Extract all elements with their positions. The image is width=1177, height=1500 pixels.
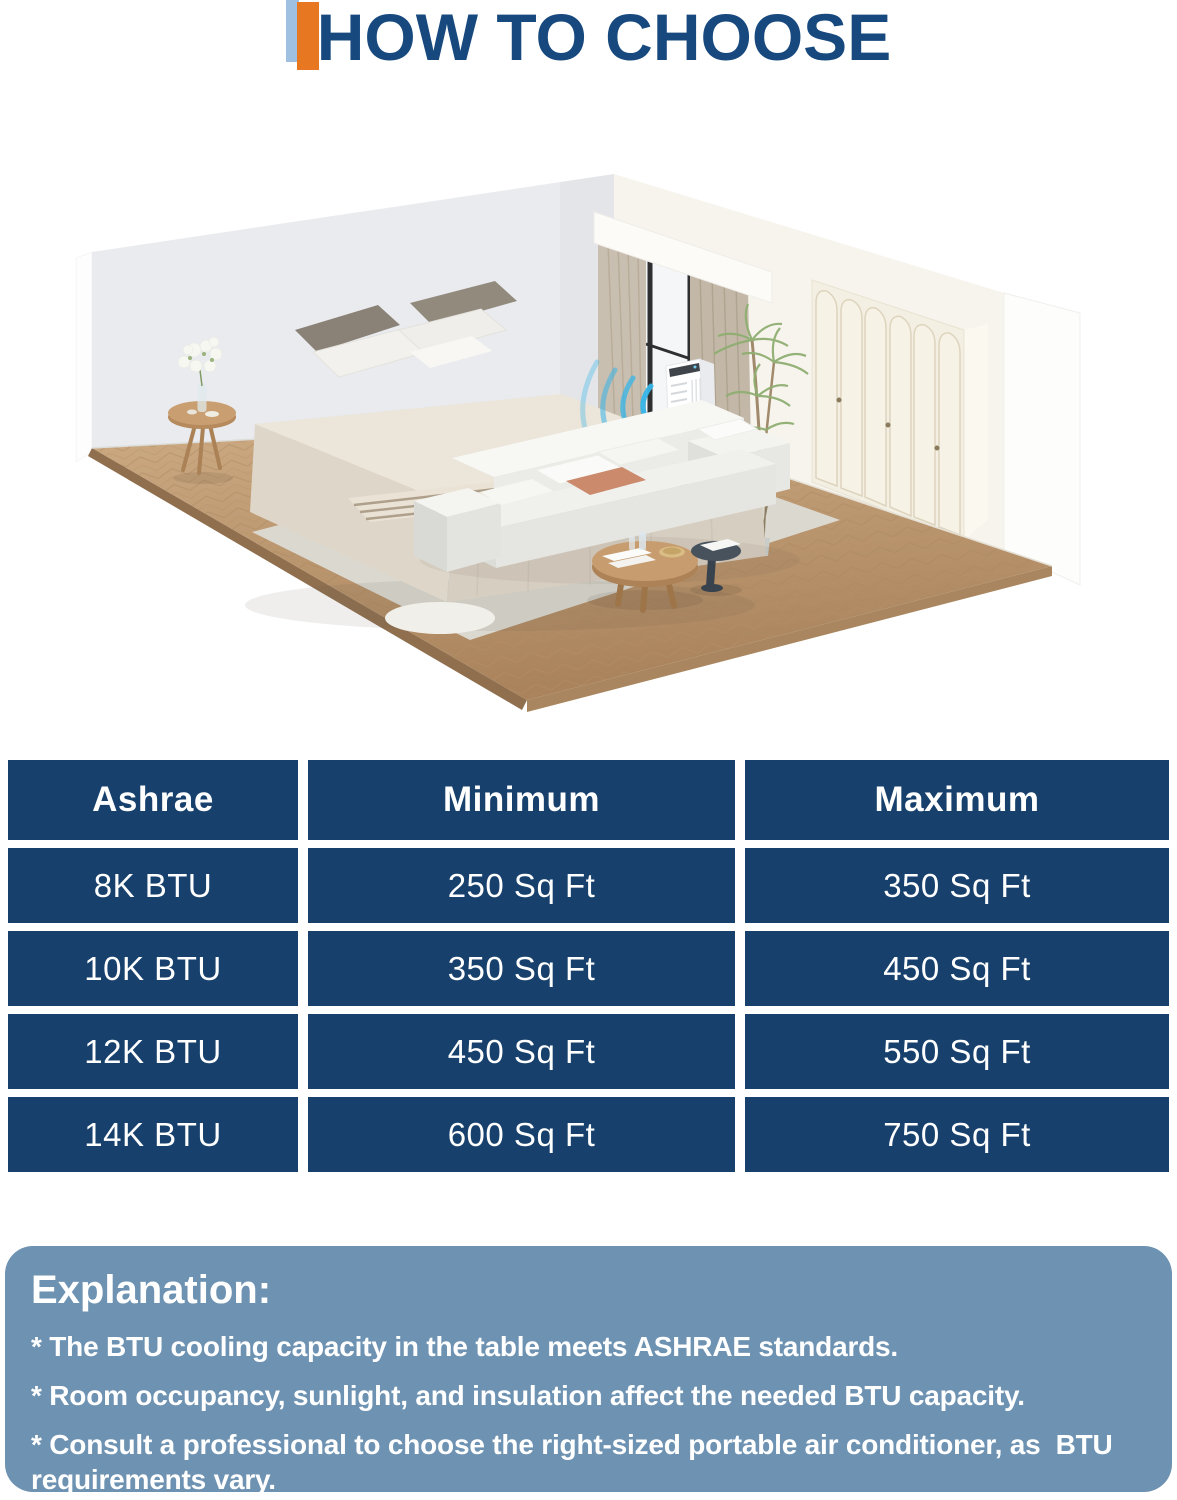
table-cell: 450 Sq Ft (308, 1014, 735, 1089)
table-cell: 350 Sq Ft (745, 848, 1169, 923)
table-cell: 450 Sq Ft (745, 931, 1169, 1006)
table-cell: 8K BTU (8, 848, 298, 923)
table-cell: 350 Sq Ft (308, 931, 735, 1006)
table-cell: 550 Sq Ft (745, 1014, 1169, 1089)
explanation-bullet-2: * Room occupancy, sunlight, and insulati… (31, 1378, 1146, 1414)
explanation-heading: Explanation: (31, 1268, 1146, 1313)
table-header-minimum: Minimum (308, 760, 735, 840)
title-row: HOW TO CHOOSE (0, 0, 1177, 86)
wall-end-panel (1004, 293, 1080, 585)
explanation-bullet-3: * Consult a professional to choose the r… (31, 1427, 1146, 1499)
explanation-panel: Explanation: * The BTU cooling capacity … (5, 1246, 1172, 1492)
accent-bar-orange-icon (297, 2, 319, 70)
infographic-page: HOW TO CHOOSE (0, 0, 1177, 1500)
table-header-maximum: Maximum (745, 760, 1169, 840)
page-title: HOW TO CHOOSE (317, 0, 891, 74)
table-cell: 250 Sq Ft (308, 848, 735, 923)
table-cell: 600 Sq Ft (308, 1097, 735, 1172)
table-cell: 750 Sq Ft (745, 1097, 1169, 1172)
table-cell: 14K BTU (8, 1097, 298, 1172)
table-cell: 12K BTU (8, 1014, 298, 1089)
explanation-bullet-1: * The BTU cooling capacity in the table … (31, 1329, 1146, 1365)
table-cell: 10K BTU (8, 931, 298, 1006)
room-illustration (0, 130, 1177, 730)
btu-sizing-table: Ashrae Minimum Maximum 8K BTU 250 Sq Ft … (8, 760, 1169, 1172)
table-header-ashrae: Ashrae (8, 760, 298, 840)
